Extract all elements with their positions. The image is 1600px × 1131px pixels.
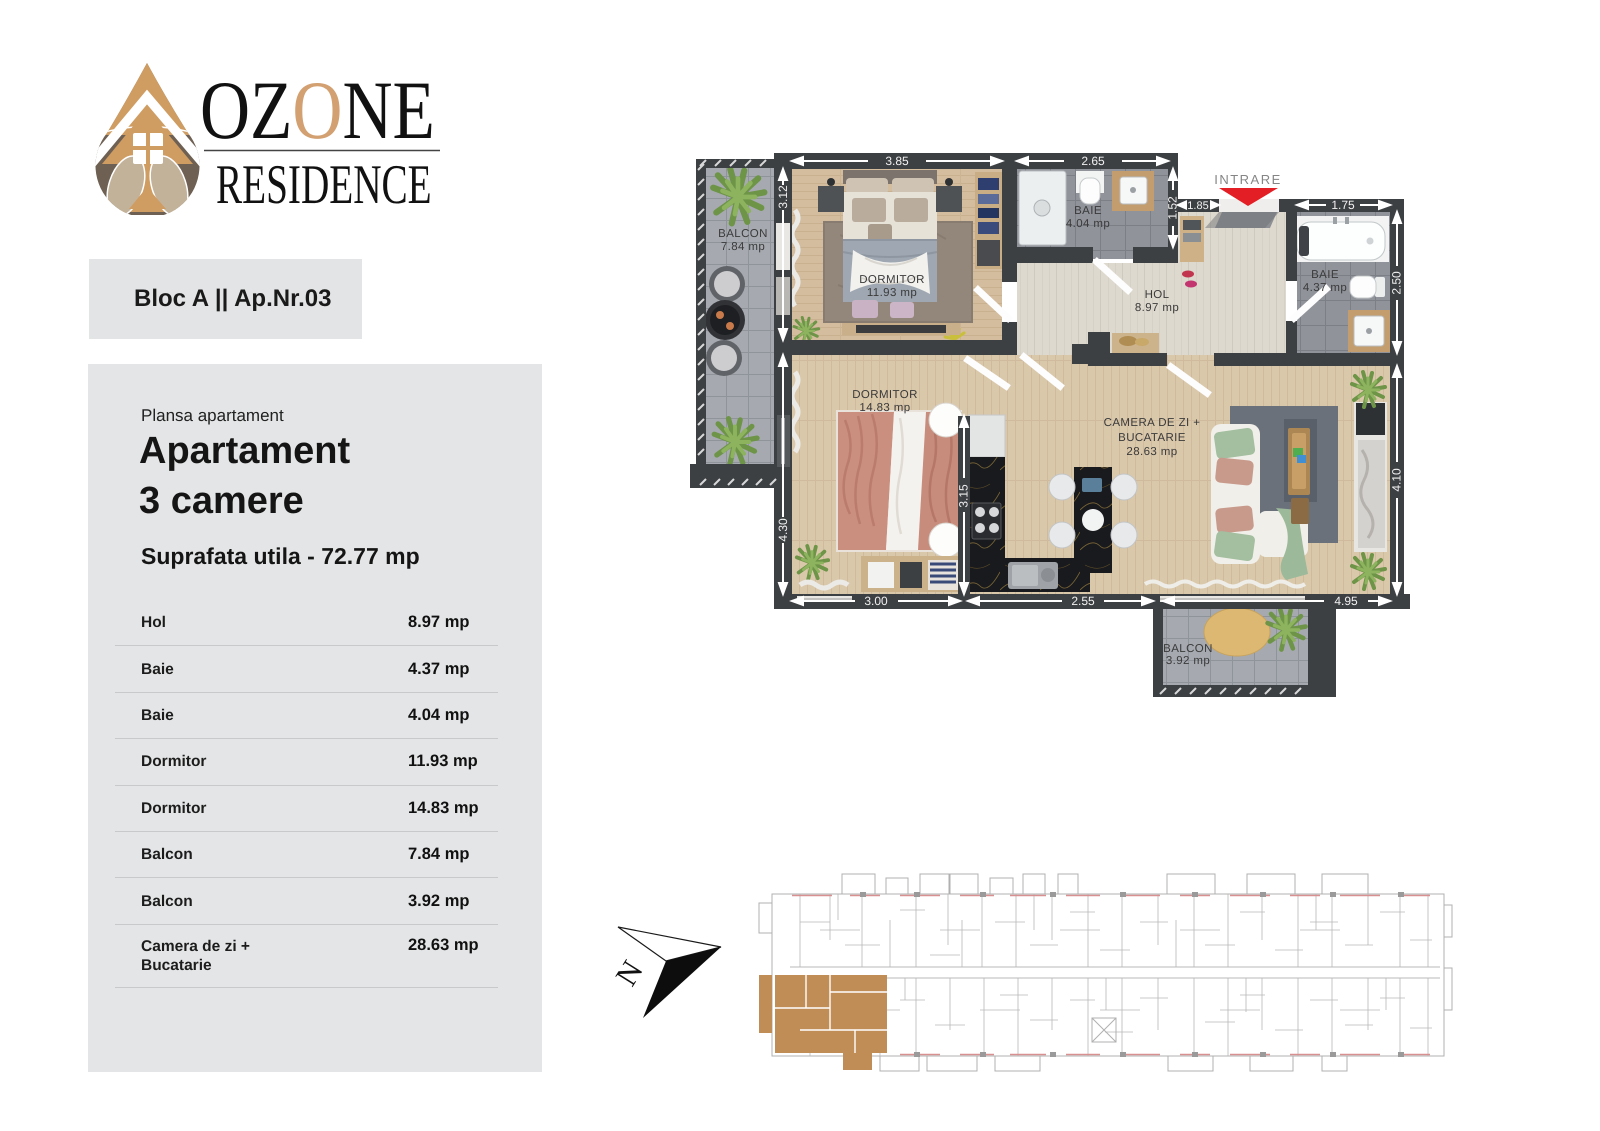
svg-text:DORMITOR: DORMITOR — [852, 389, 918, 401]
svg-text:4.37 mp: 4.37 mp — [1303, 282, 1347, 294]
svg-text:4.30: 4.30 — [776, 518, 790, 542]
svg-text:CAMERA DE ZI +: CAMERA DE ZI + — [1104, 417, 1201, 429]
svg-text:DORMITOR: DORMITOR — [859, 274, 925, 286]
svg-text:3.00: 3.00 — [864, 594, 888, 608]
svg-text:7.84 mp: 7.84 mp — [721, 241, 765, 253]
svg-text:RESIDENCE: RESIDENCE — [216, 154, 432, 215]
svg-text:3.85: 3.85 — [885, 154, 909, 168]
svg-text:14.83 mp: 14.83 mp — [859, 402, 910, 414]
svg-text:3.92 mp: 3.92 mp — [1166, 655, 1210, 667]
svg-text:1.52: 1.52 — [1166, 196, 1180, 220]
svg-text:1.85: 1.85 — [1187, 200, 1208, 212]
svg-text:2.55: 2.55 — [1071, 594, 1095, 608]
svg-text:BAIE: BAIE — [1311, 269, 1339, 281]
svg-text:BAIE: BAIE — [1074, 205, 1102, 217]
svg-text:HOL: HOL — [1145, 289, 1170, 301]
svg-text:BUCATARIE: BUCATARIE — [1118, 432, 1186, 444]
svg-text:INTRARE: INTRARE — [1214, 172, 1282, 187]
svg-text:BALCON: BALCON — [718, 228, 768, 240]
svg-text:2.65: 2.65 — [1081, 154, 1105, 168]
svg-text:3.12: 3.12 — [776, 185, 790, 209]
svg-text:BALCON: BALCON — [1163, 643, 1213, 655]
svg-text:1.75: 1.75 — [1331, 198, 1355, 212]
svg-text:4.10: 4.10 — [1390, 468, 1404, 492]
svg-text:11.93 mp: 11.93 mp — [867, 287, 917, 299]
svg-text:2.50: 2.50 — [1390, 271, 1404, 295]
svg-text:N: N — [610, 954, 650, 992]
svg-text:8.97 mp: 8.97 mp — [1135, 302, 1179, 314]
svg-text:OZONE: OZONE — [200, 64, 435, 156]
svg-text:4.95: 4.95 — [1334, 594, 1358, 608]
svg-text:28.63 mp: 28.63 mp — [1126, 446, 1177, 458]
svg-text:3.15: 3.15 — [957, 484, 971, 508]
svg-text:4.04 mp: 4.04 mp — [1066, 218, 1110, 230]
